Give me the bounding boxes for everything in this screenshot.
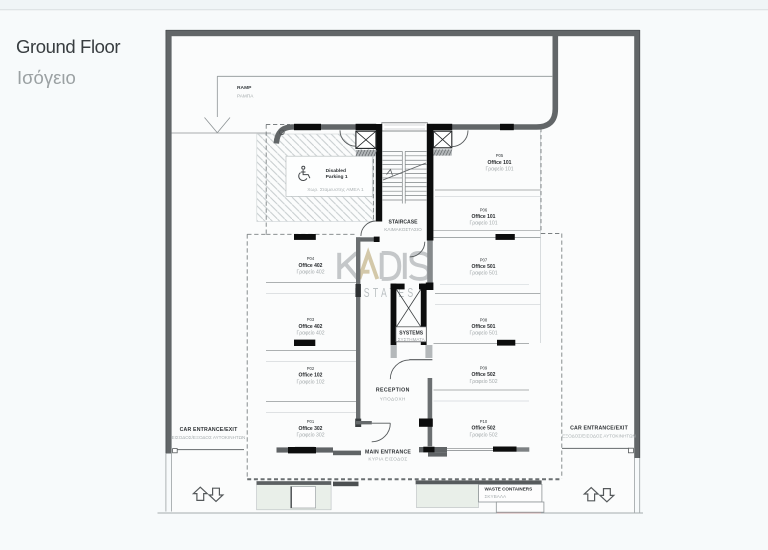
svg-text:STAIRCASE: STAIRCASE: [388, 220, 418, 226]
svg-text:Office 502: Office 502: [472, 426, 496, 432]
svg-text:P05: P05: [496, 153, 504, 158]
svg-text:Office 101: Office 101: [472, 214, 496, 220]
svg-text:P06: P06: [480, 207, 488, 212]
svg-text:ΚΛΙΜΑΚΟΣΤΑΣΙΟ: ΚΛΙΜΑΚΟΣΤΑΣΙΟ: [384, 227, 422, 232]
svg-text:P08: P08: [480, 317, 488, 322]
svg-text:SYSTEMS: SYSTEMS: [399, 330, 424, 336]
svg-text:Γραφείο 502: Γραφείο 502: [469, 432, 497, 438]
svg-text:ΕΙΣΟΔΟΣ/ΕΞΟΔΟΣ ΑΥΤΟΚΙΝΗΤΩΝ: ΕΙΣΟΔΟΣ/ΕΞΟΔΟΣ ΑΥΤΟΚΙΝΗΤΩΝ: [172, 435, 246, 440]
svg-text:P04: P04: [307, 256, 315, 261]
svg-text:CAR ENTRANCE/EXIT: CAR ENTRANCE/EXIT: [570, 425, 629, 431]
svg-text:ΡΑΜΠΑ: ΡΑΜΠΑ: [237, 94, 254, 99]
svg-text:P02: P02: [307, 366, 315, 371]
svg-text:P03: P03: [307, 317, 315, 322]
svg-text:Office 402: Office 402: [299, 263, 323, 269]
svg-text:MAIN ENTRANCE: MAIN ENTRANCE: [365, 449, 411, 455]
svg-text:Γραφείο 101: Γραφείο 101: [469, 221, 497, 227]
svg-text:Office 302: Office 302: [299, 426, 323, 432]
svg-text:Γραφείο 402: Γραφείο 402: [296, 331, 324, 337]
svg-text:Office 102: Office 102: [299, 373, 323, 379]
svg-text:Γραφείο 501: Γραφείο 501: [469, 271, 497, 277]
svg-text:ΣΚΥΒΑΛΑ: ΣΚΥΒΑΛΑ: [485, 494, 508, 499]
svg-text:Office 101: Office 101: [488, 160, 512, 166]
svg-text:ESTATES: ESTATES: [355, 287, 417, 301]
svg-text:P10: P10: [480, 419, 488, 424]
svg-text:P09: P09: [480, 365, 488, 370]
svg-text:Office 501: Office 501: [472, 264, 496, 270]
svg-text:Γραφείο 101: Γραφείο 101: [485, 167, 513, 173]
svg-text:P01: P01: [307, 419, 315, 424]
svg-text:Γραφείο 102: Γραφείο 102: [296, 379, 324, 385]
svg-text:Disabled: Disabled: [326, 168, 346, 174]
svg-text:Ground Floor: Ground Floor: [16, 36, 120, 57]
svg-text:ΚΥΡΙΑ ΕΙΣΟΔΟΣ: ΚΥΡΙΑ ΕΙΣΟΔΟΣ: [368, 457, 407, 462]
svg-text:CAR ENTRANCE/EXIT: CAR ENTRANCE/EXIT: [180, 427, 239, 433]
svg-text:Office 502: Office 502: [472, 372, 496, 378]
svg-text:ΥΠΟΔΟΧΗ: ΥΠΟΔΟΧΗ: [380, 397, 406, 402]
svg-text:Γραφείο 501: Γραφείο 501: [469, 331, 497, 337]
svg-text:Γραφείο 402: Γραφείο 402: [296, 270, 324, 276]
svg-text:Χωρ. Σταμευστης ΑΜΕΑ 1: Χωρ. Σταμευστης ΑΜΕΑ 1: [307, 187, 364, 193]
svg-text:Γραφείο 302: Γραφείο 302: [296, 433, 324, 439]
svg-text:Parking 1: Parking 1: [326, 174, 348, 180]
svg-text:ΣΥΣΤΗΜΑΤΑ: ΣΥΣΤΗΜΑΤΑ: [398, 337, 426, 342]
svg-text:Office 501: Office 501: [472, 324, 496, 330]
svg-text:Γραφείο 502: Γραφείο 502: [469, 379, 497, 385]
svg-text:WASTE CONTAINERS: WASTE CONTAINERS: [485, 486, 533, 491]
svg-text:RAMP: RAMP: [237, 85, 252, 91]
svg-text:Office 402: Office 402: [299, 324, 323, 330]
svg-text:Ισόγειο: Ισόγειο: [17, 67, 76, 88]
svg-text:P07: P07: [480, 257, 488, 262]
svg-text:RECEPTION: RECEPTION: [376, 388, 410, 394]
svg-text:ΕΞΟΔΟΣ/ΕΙΣΟΔΟΣ ΑΥΤΟΚΙΝΗΤΩΝ: ΕΞΟΔΟΣ/ΕΙΣΟΔΟΣ ΑΥΤΟΚΙΝΗΤΩΝ: [562, 433, 636, 438]
